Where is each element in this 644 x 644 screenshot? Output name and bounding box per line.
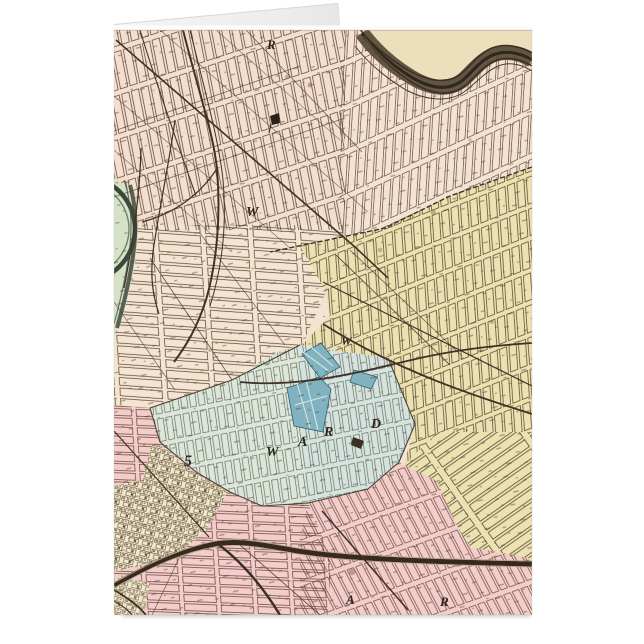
svg-text:R: R bbox=[266, 37, 276, 52]
svg-text:W: W bbox=[246, 205, 260, 220]
svg-text:R: R bbox=[323, 425, 333, 440]
svg-text:A: A bbox=[297, 435, 307, 450]
svg-text:5: 5 bbox=[184, 453, 192, 470]
svg-text:W: W bbox=[266, 445, 280, 460]
svg-text:R: R bbox=[439, 594, 449, 609]
svg-text:A: A bbox=[345, 592, 355, 607]
svg-text:W: W bbox=[341, 334, 353, 348]
svg-text:D: D bbox=[370, 417, 381, 432]
